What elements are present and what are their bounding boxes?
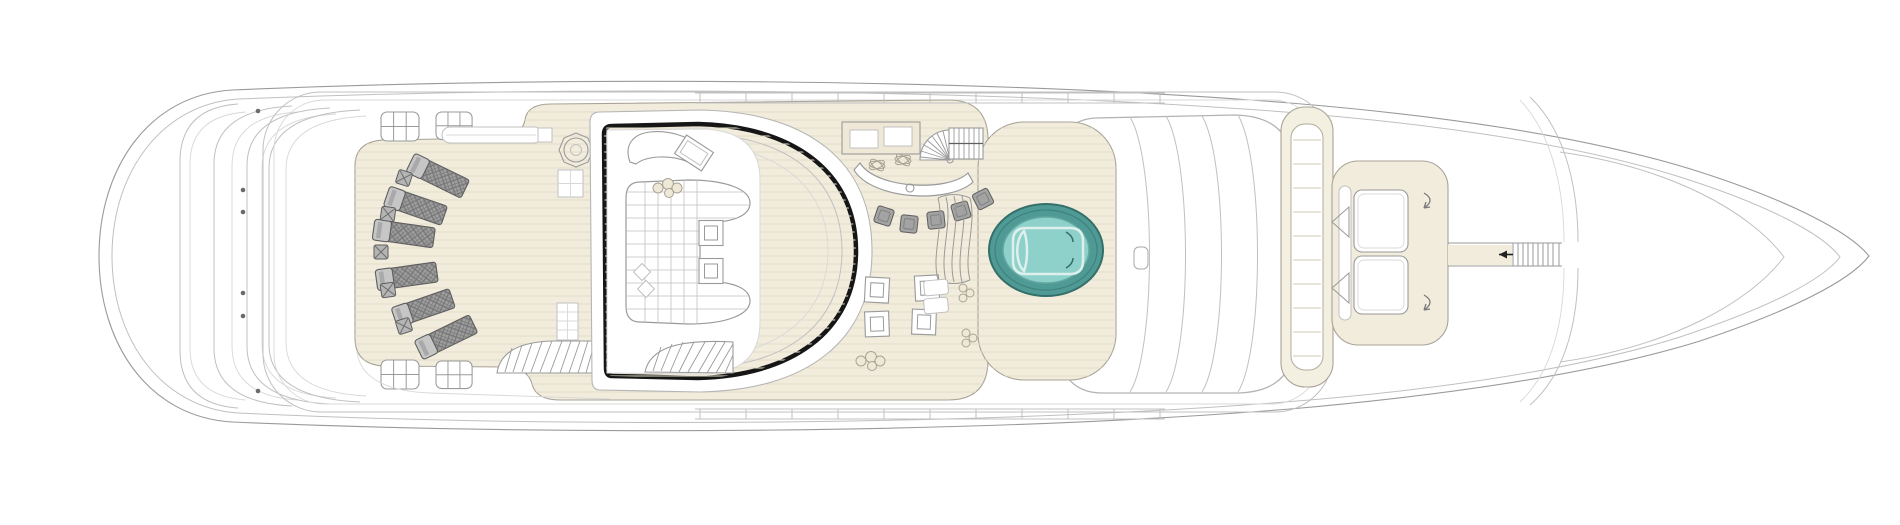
deck-plan-svg <box>0 0 1900 525</box>
bow-walkway <box>1448 243 1562 266</box>
antenna-bar <box>442 127 552 143</box>
stern-deck-edges <box>180 104 366 408</box>
back-bar-counter <box>842 122 920 154</box>
skylight-structure <box>1281 107 1333 387</box>
yacht-deck-plan <box>0 0 1900 525</box>
bow-sunpad-platform <box>1332 161 1448 345</box>
jacuzzi <box>989 204 1103 296</box>
bow-steps <box>1513 243 1559 266</box>
bow-sunpads <box>1354 190 1408 314</box>
companionway-stairs <box>949 128 983 159</box>
stanchion-dots <box>241 109 261 394</box>
bow-superstructure <box>1520 97 1784 405</box>
side-ladder <box>557 303 578 340</box>
dome-hatch <box>1134 247 1148 269</box>
